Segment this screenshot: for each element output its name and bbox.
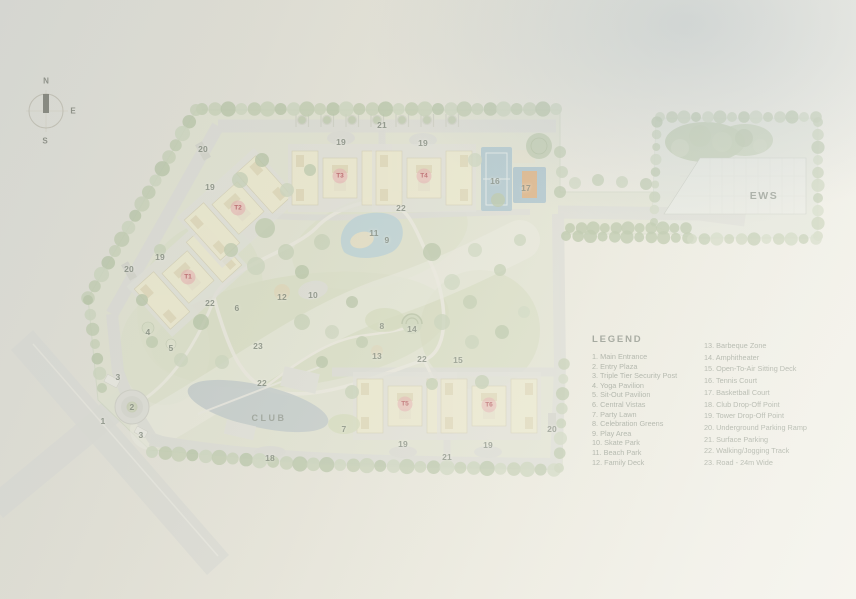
compass-north-label: N bbox=[43, 77, 49, 86]
legend-item: 15. Open-To-Air Sitting Deck bbox=[704, 363, 807, 375]
map-marker-22: 22 bbox=[205, 298, 215, 308]
map-marker-13: 13 bbox=[372, 351, 382, 361]
ews-label: EWS bbox=[750, 190, 778, 202]
map-marker-2: 2 bbox=[130, 402, 135, 412]
map-marker-20: 20 bbox=[198, 144, 208, 154]
compass-rose: N E S bbox=[20, 70, 78, 154]
legend-item: 16. Tennis Court bbox=[704, 375, 807, 387]
map-marker-20: 20 bbox=[547, 424, 557, 434]
legend-item: 8. Celebration Greens bbox=[592, 419, 704, 429]
legend-item: 3. Triple Tier Security Post bbox=[592, 371, 704, 381]
map-marker-16: 16 bbox=[490, 176, 500, 186]
legend-item: 7. Party Lawn bbox=[592, 410, 704, 420]
map-marker-21: 21 bbox=[377, 120, 387, 130]
map-marker-1: 1 bbox=[101, 416, 106, 426]
map-marker-18: 18 bbox=[265, 453, 275, 463]
legend-item: 11. Beach Park bbox=[592, 448, 704, 458]
site-plan-canvas: N E S 1233456789101112131415161718191919… bbox=[0, 0, 856, 599]
map-marker-3: 3 bbox=[116, 372, 121, 382]
map-marker-10: 10 bbox=[308, 290, 318, 300]
legend-item: 12. Family Deck bbox=[592, 458, 704, 468]
map-marker-5: 5 bbox=[169, 343, 174, 353]
legend-item: 17. Basketball Court bbox=[704, 387, 807, 399]
legend-item: 1. Main Entrance bbox=[592, 352, 704, 362]
tower-badge-T5: T5 bbox=[398, 397, 413, 412]
club-label: CLUB bbox=[252, 413, 287, 423]
legend-item: 6. Central Vistas bbox=[592, 400, 704, 410]
tower-badge-T3: T3 bbox=[333, 169, 348, 184]
legend-item: 22. Walking/Jogging Track bbox=[704, 445, 807, 457]
map-marker-12: 12 bbox=[277, 292, 287, 302]
map-marker-22: 22 bbox=[257, 378, 267, 388]
map-marker-3: 3 bbox=[139, 430, 144, 440]
map-marker-17: 17 bbox=[521, 183, 531, 193]
map-marker-6: 6 bbox=[235, 303, 240, 313]
map-marker-8: 8 bbox=[380, 321, 385, 331]
compass-east-label: E bbox=[70, 107, 75, 116]
legend-item: 10. Skate Park bbox=[592, 438, 704, 448]
legend-column-1: 1. Main Entrance2. Entry Plaza3. Triple … bbox=[592, 352, 704, 469]
compass-south-label: S bbox=[42, 137, 47, 146]
legend-item: 9. Play Area bbox=[592, 429, 704, 439]
map-marker-19: 19 bbox=[205, 182, 215, 192]
legend-item: 14. Amphitheater bbox=[704, 352, 807, 364]
tower-badge-T6: T6 bbox=[482, 398, 497, 413]
map-marker-19: 19 bbox=[483, 440, 493, 450]
legend: LEGEND 1. Main Entrance2. Entry Plaza3. … bbox=[592, 334, 807, 469]
legend-item: 13. Barbeque Zone bbox=[704, 340, 807, 352]
map-marker-23: 23 bbox=[253, 341, 263, 351]
map-marker-21: 21 bbox=[442, 452, 452, 462]
legend-item: 19. Tower Drop-Off Point bbox=[704, 410, 807, 422]
map-marker-15: 15 bbox=[453, 355, 463, 365]
legend-item: 21. Surface Parking bbox=[704, 434, 807, 446]
tower-badge-T2: T2 bbox=[231, 201, 246, 216]
map-marker-20: 20 bbox=[124, 264, 134, 274]
map-marker-22: 22 bbox=[417, 354, 427, 364]
map-marker-11: 11 bbox=[369, 228, 378, 238]
legend-item: 4. Yoga Pavilion bbox=[592, 381, 704, 391]
map-marker-19: 19 bbox=[155, 252, 165, 262]
map-marker-7: 7 bbox=[342, 424, 347, 434]
map-marker-19: 19 bbox=[398, 439, 408, 449]
legend-item: 5. Sit-Out Pavilion bbox=[592, 390, 704, 400]
map-marker-19: 19 bbox=[336, 137, 346, 147]
map-marker-14: 14 bbox=[407, 324, 417, 334]
legend-item: 23. Road - 24m Wide bbox=[704, 457, 807, 469]
map-marker-4: 4 bbox=[146, 327, 151, 337]
tower-badge-T4: T4 bbox=[417, 169, 432, 184]
compass-needle-icon bbox=[43, 94, 49, 113]
legend-item: 2. Entry Plaza bbox=[592, 362, 704, 372]
legend-column-2: 13. Barbeque Zone14. Amphitheater15. Ope… bbox=[704, 340, 807, 469]
map-marker-19: 19 bbox=[418, 138, 428, 148]
legend-item: 18. Club Drop-Off Point bbox=[704, 399, 807, 411]
map-marker-22: 22 bbox=[396, 203, 406, 213]
legend-item: 20. Underground Parking Ramp bbox=[704, 422, 807, 434]
tower-badge-T1: T1 bbox=[181, 270, 196, 285]
map-marker-9: 9 bbox=[385, 235, 390, 245]
site-plan-map bbox=[0, 0, 856, 599]
